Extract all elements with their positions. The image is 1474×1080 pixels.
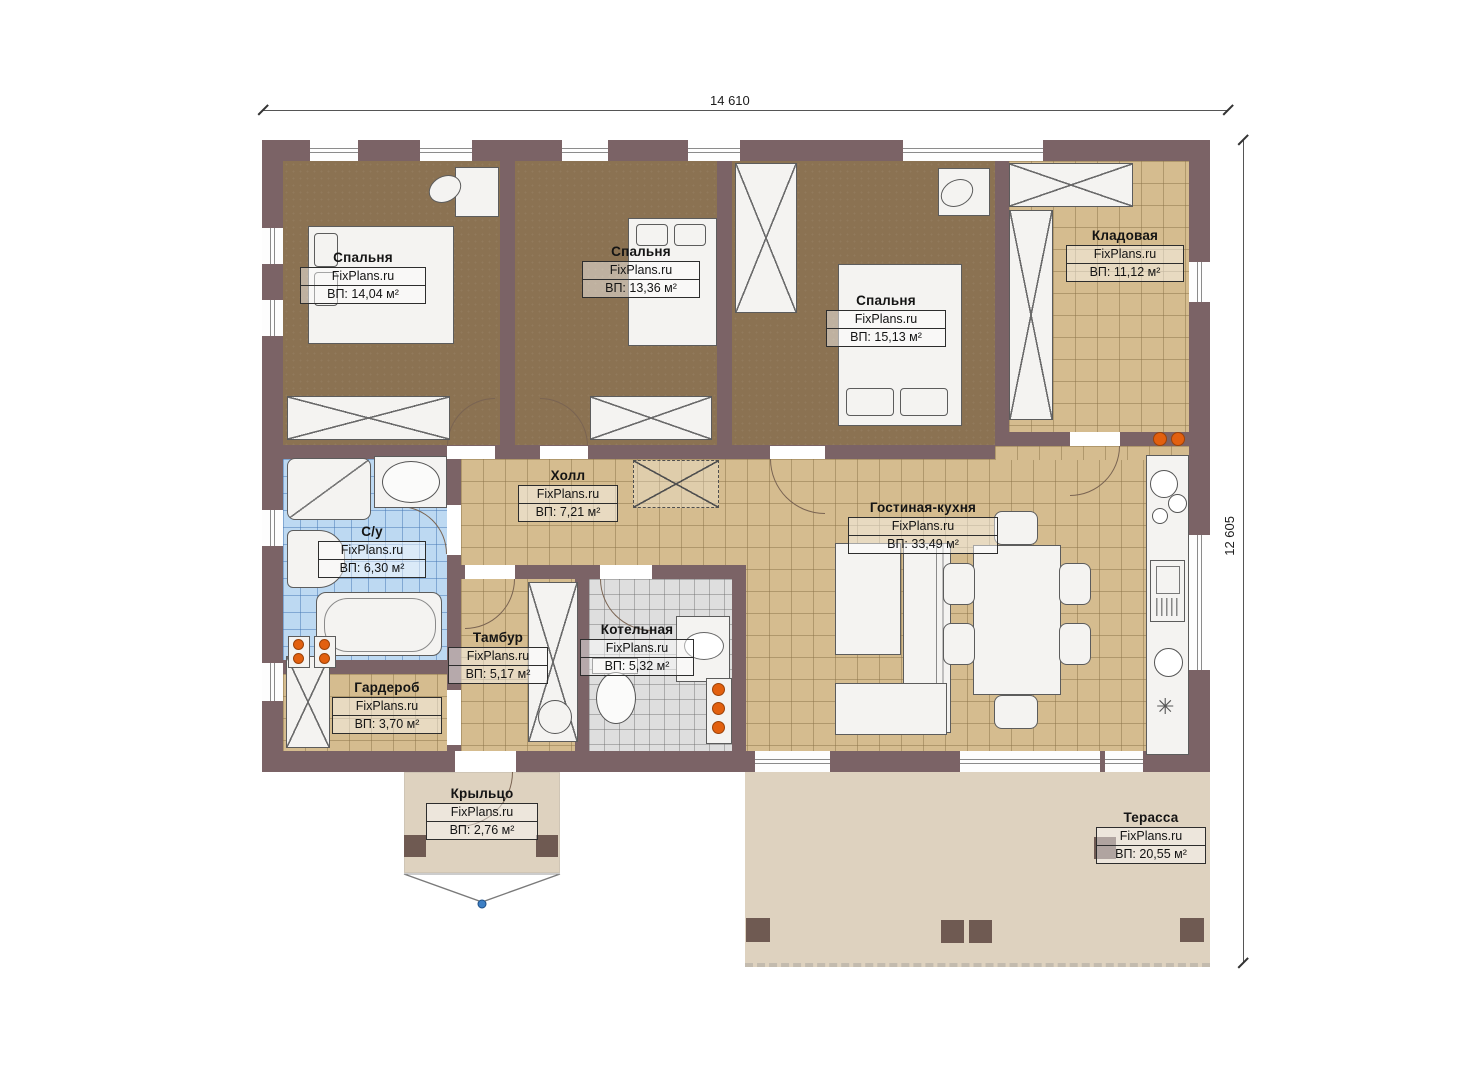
room-area: ВП: 11,12 м² (1066, 264, 1184, 282)
brand-watermark: FixPlans.ru (318, 541, 426, 560)
hob-burner-icon (1168, 494, 1187, 513)
oven-window (1156, 566, 1180, 594)
room-name: Крыльцо (426, 786, 538, 801)
room-label-boiler-room: Котельная FixPlans.ru ВП: 5,32 м² (580, 622, 694, 676)
shower-tray-icon (287, 458, 371, 520)
radiator-dot (319, 653, 330, 664)
window (310, 140, 358, 161)
wardrobe-cabinet-icon (286, 656, 330, 748)
door-gap (465, 565, 515, 579)
interior-wall (732, 579, 746, 751)
room-name: Тамбур (448, 630, 548, 645)
door-gap (447, 446, 495, 459)
radiator-dot (712, 683, 725, 696)
brand-watermark: FixPlans.ru (848, 517, 998, 536)
sink-icon (382, 461, 440, 503)
wardrobe-cabinet-icon (735, 163, 797, 313)
door-gap (447, 505, 461, 555)
toilet-bowl (596, 672, 636, 724)
window (262, 300, 283, 336)
room-label-living-kitchen: Гостиная-кухня FixPlans.ru ВП: 33,49 м² (848, 500, 998, 554)
window (755, 751, 830, 772)
door-gap (600, 565, 652, 579)
dimension-line-right (1243, 140, 1244, 963)
brand-watermark: FixPlans.ru (580, 639, 694, 658)
radiator-dot (319, 639, 330, 650)
brand-watermark: FixPlans.ru (448, 647, 548, 666)
brand-watermark: FixPlans.ru (1096, 827, 1206, 846)
wardrobe-cabinet-icon (1009, 163, 1133, 207)
room-area: ВП: 15,13 м² (826, 329, 946, 347)
chair-icon (994, 695, 1038, 729)
post (1180, 918, 1204, 942)
door-gap (1070, 432, 1120, 446)
room-area: ВП: 33,49 м² (848, 536, 998, 554)
room-label-terrace: Терасса FixPlans.ru ВП: 20,55 м² (1096, 810, 1206, 864)
washing-machine-icon (538, 700, 572, 734)
radiator-dot (1153, 432, 1167, 446)
room-name: Кладовая (1066, 228, 1184, 243)
chair-icon (1059, 623, 1091, 665)
chair-icon (943, 623, 975, 665)
door-gap (447, 690, 461, 745)
brand-watermark: FixPlans.ru (300, 267, 426, 286)
attic-hatch-icon (633, 460, 719, 508)
chair-icon (994, 511, 1038, 545)
room-label-bedroom-3: Спальня FixPlans.ru ВП: 15,13 м² (826, 293, 946, 347)
room-name: С/у (318, 524, 426, 539)
radiator-dot (1171, 432, 1185, 446)
post (404, 835, 426, 857)
window (1105, 751, 1143, 772)
room-name: Котельная (580, 622, 694, 637)
radiator-dot (293, 639, 304, 650)
dimension-line-top (262, 110, 1228, 111)
door-gap (540, 446, 588, 459)
window (562, 140, 608, 161)
sofa-chaise-icon (835, 543, 901, 655)
dining-table-icon (973, 545, 1061, 695)
radiator-dot (293, 653, 304, 664)
hob-burner-icon (1152, 508, 1168, 524)
brand-watermark: FixPlans.ru (826, 310, 946, 329)
wardrobe-cabinet-icon (287, 396, 450, 440)
post (969, 920, 992, 943)
round-sink-icon (1154, 648, 1183, 677)
room-label-porch: Крыльцо FixPlans.ru ВП: 2,76 м² (426, 786, 538, 840)
brand-watermark: FixPlans.ru (332, 697, 442, 716)
terrace-door (960, 751, 1100, 772)
oven-grill (1156, 598, 1178, 616)
room-name: Гостиная-кухня (848, 500, 998, 515)
room-name: Спальня (582, 244, 700, 259)
window (1189, 535, 1210, 670)
brand-watermark: FixPlans.ru (426, 803, 538, 822)
wardrobe-cabinet-icon (590, 396, 712, 440)
room-label-vestibule: Тамбур FixPlans.ru ВП: 5,17 м² (448, 630, 548, 684)
window (1189, 262, 1210, 302)
room-area: ВП: 2,76 м² (426, 822, 538, 840)
room-label-storage: Кладовая FixPlans.ru ВП: 11,12 м² (1066, 228, 1184, 282)
dresser-icon (455, 167, 499, 217)
room-label-hall: Холл FixPlans.ru ВП: 7,21 м² (518, 468, 618, 522)
sofa-bench-icon (835, 683, 947, 735)
radiator-dot (712, 721, 725, 734)
room-area: ВП: 13,36 м² (582, 280, 700, 298)
post (536, 835, 558, 857)
pillow-icon (674, 224, 706, 246)
chair-icon (1059, 563, 1091, 605)
window (262, 228, 283, 264)
floor-plan: 14 610 12 605 (0, 0, 1474, 1080)
room-name: Холл (518, 468, 618, 483)
dimension-width-label: 14 610 (706, 93, 754, 108)
chair-icon (943, 563, 975, 605)
pillow-icon (900, 388, 948, 416)
pillow-icon (636, 224, 668, 246)
room-area: ВП: 6,30 м² (318, 560, 426, 578)
window (262, 663, 283, 701)
room-label-bathroom: С/у FixPlans.ru ВП: 6,30 м² (318, 524, 426, 578)
room-name: Гардероб (332, 680, 442, 695)
room-area: ВП: 5,17 м² (448, 666, 548, 684)
brand-watermark: FixPlans.ru (518, 485, 618, 504)
room-name: Терасса (1096, 810, 1206, 825)
room-area: ВП: 20,55 м² (1096, 846, 1206, 864)
wardrobe-cabinet-icon (1009, 210, 1053, 420)
dimension-height-label: 12 605 (1222, 512, 1237, 560)
room-label-bedroom-1: Спальня FixPlans.ru ВП: 14,04 м² (300, 250, 426, 304)
brand-watermark: FixPlans.ru (582, 261, 700, 280)
brand-watermark: FixPlans.ru (1066, 245, 1184, 264)
room-area: ВП: 5,32 м² (580, 658, 694, 676)
pillow-icon (846, 388, 894, 416)
room-area: ВП: 3,70 м² (332, 716, 442, 734)
window (688, 140, 740, 161)
room-name: Спальня (826, 293, 946, 308)
entry-door-gap (455, 751, 516, 772)
post (746, 918, 770, 942)
porch-steps (402, 872, 562, 910)
door-gap (770, 446, 825, 459)
post (941, 920, 964, 943)
room-name: Спальня (300, 250, 426, 265)
room-label-wardrobe: Гардероб FixPlans.ru ВП: 3,70 м² (332, 680, 442, 734)
room-label-bedroom-2: Спальня FixPlans.ru ВП: 13,36 м² (582, 244, 700, 298)
room-area: ВП: 7,21 м² (518, 504, 618, 522)
radiator-dot (712, 702, 725, 715)
window (420, 140, 472, 161)
lamp-symbol: ✳ (1156, 694, 1174, 720)
window (262, 510, 283, 546)
room-area: ВП: 14,04 м² (300, 286, 426, 304)
bathtub-inner (324, 598, 436, 652)
window (903, 140, 1043, 161)
